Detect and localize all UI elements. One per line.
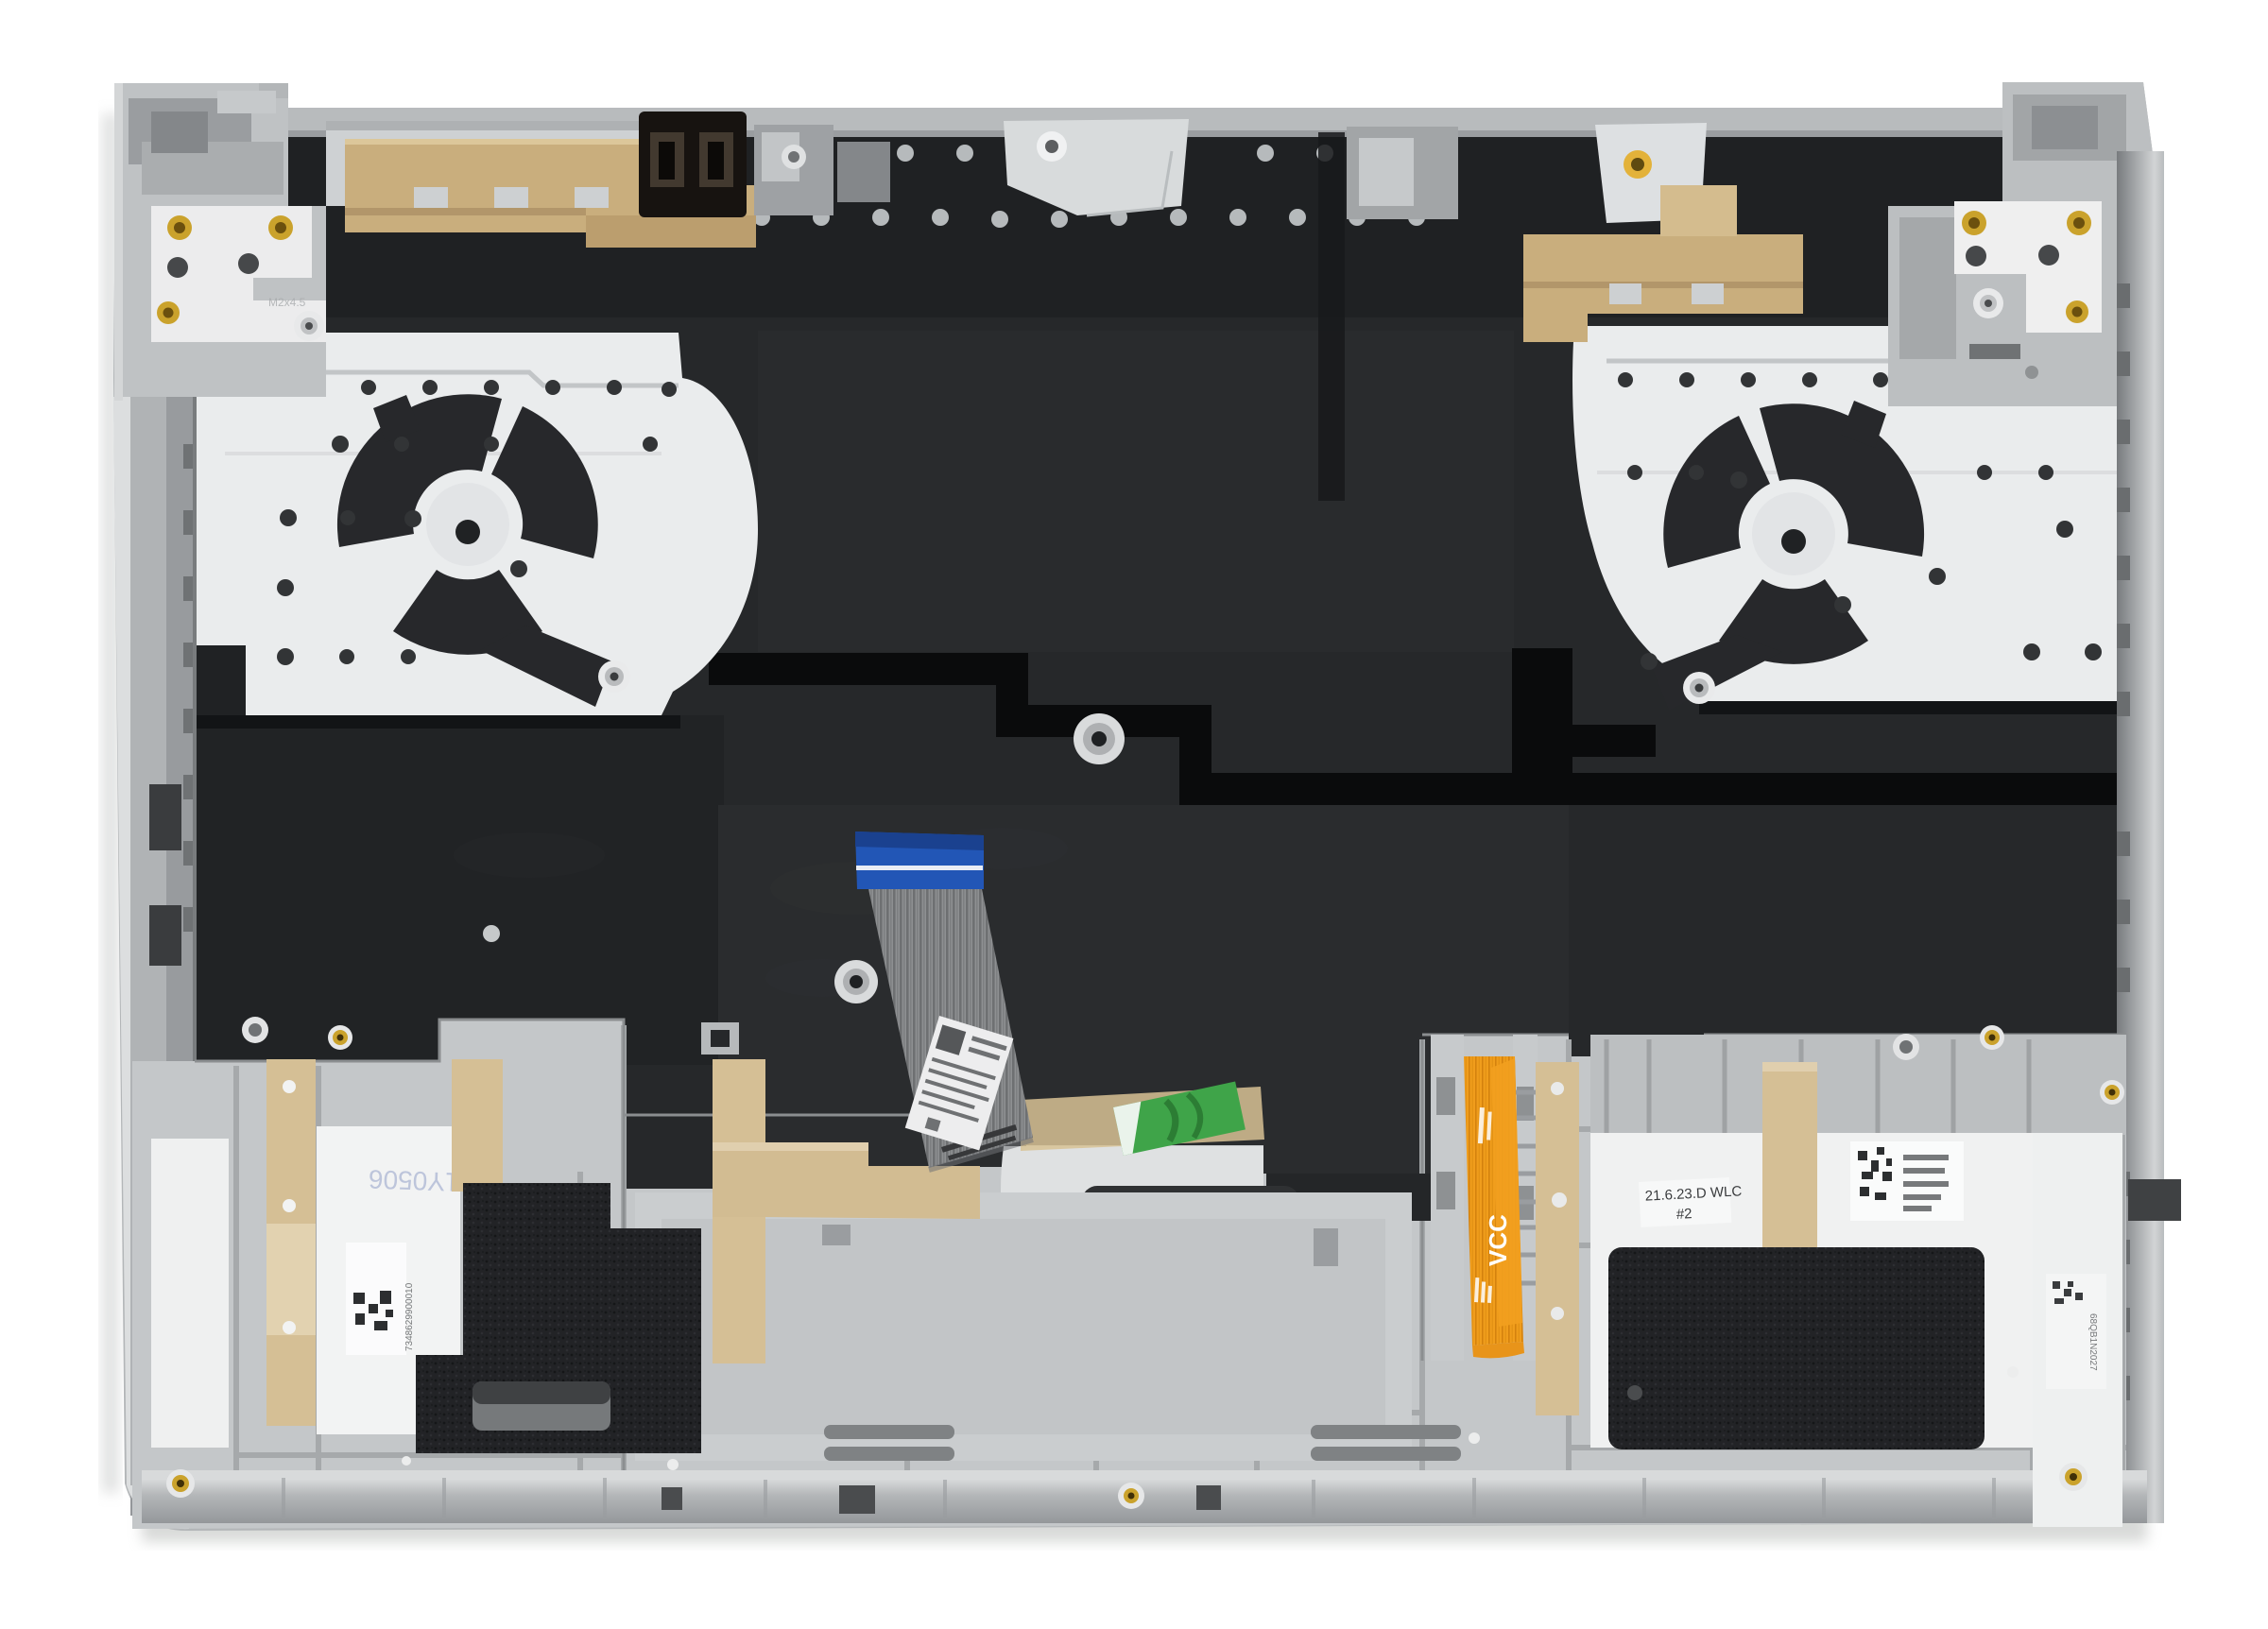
svg-text:#2: #2 bbox=[1675, 1206, 1692, 1223]
svg-text:M2x4.5: M2x4.5 bbox=[268, 296, 306, 309]
svg-text:7348629900010: 7348629900010 bbox=[404, 1282, 415, 1351]
svg-text:VCC: VCC bbox=[1484, 1214, 1512, 1266]
svg-text:68QB1N2027: 68QB1N2027 bbox=[2088, 1313, 2098, 1371]
